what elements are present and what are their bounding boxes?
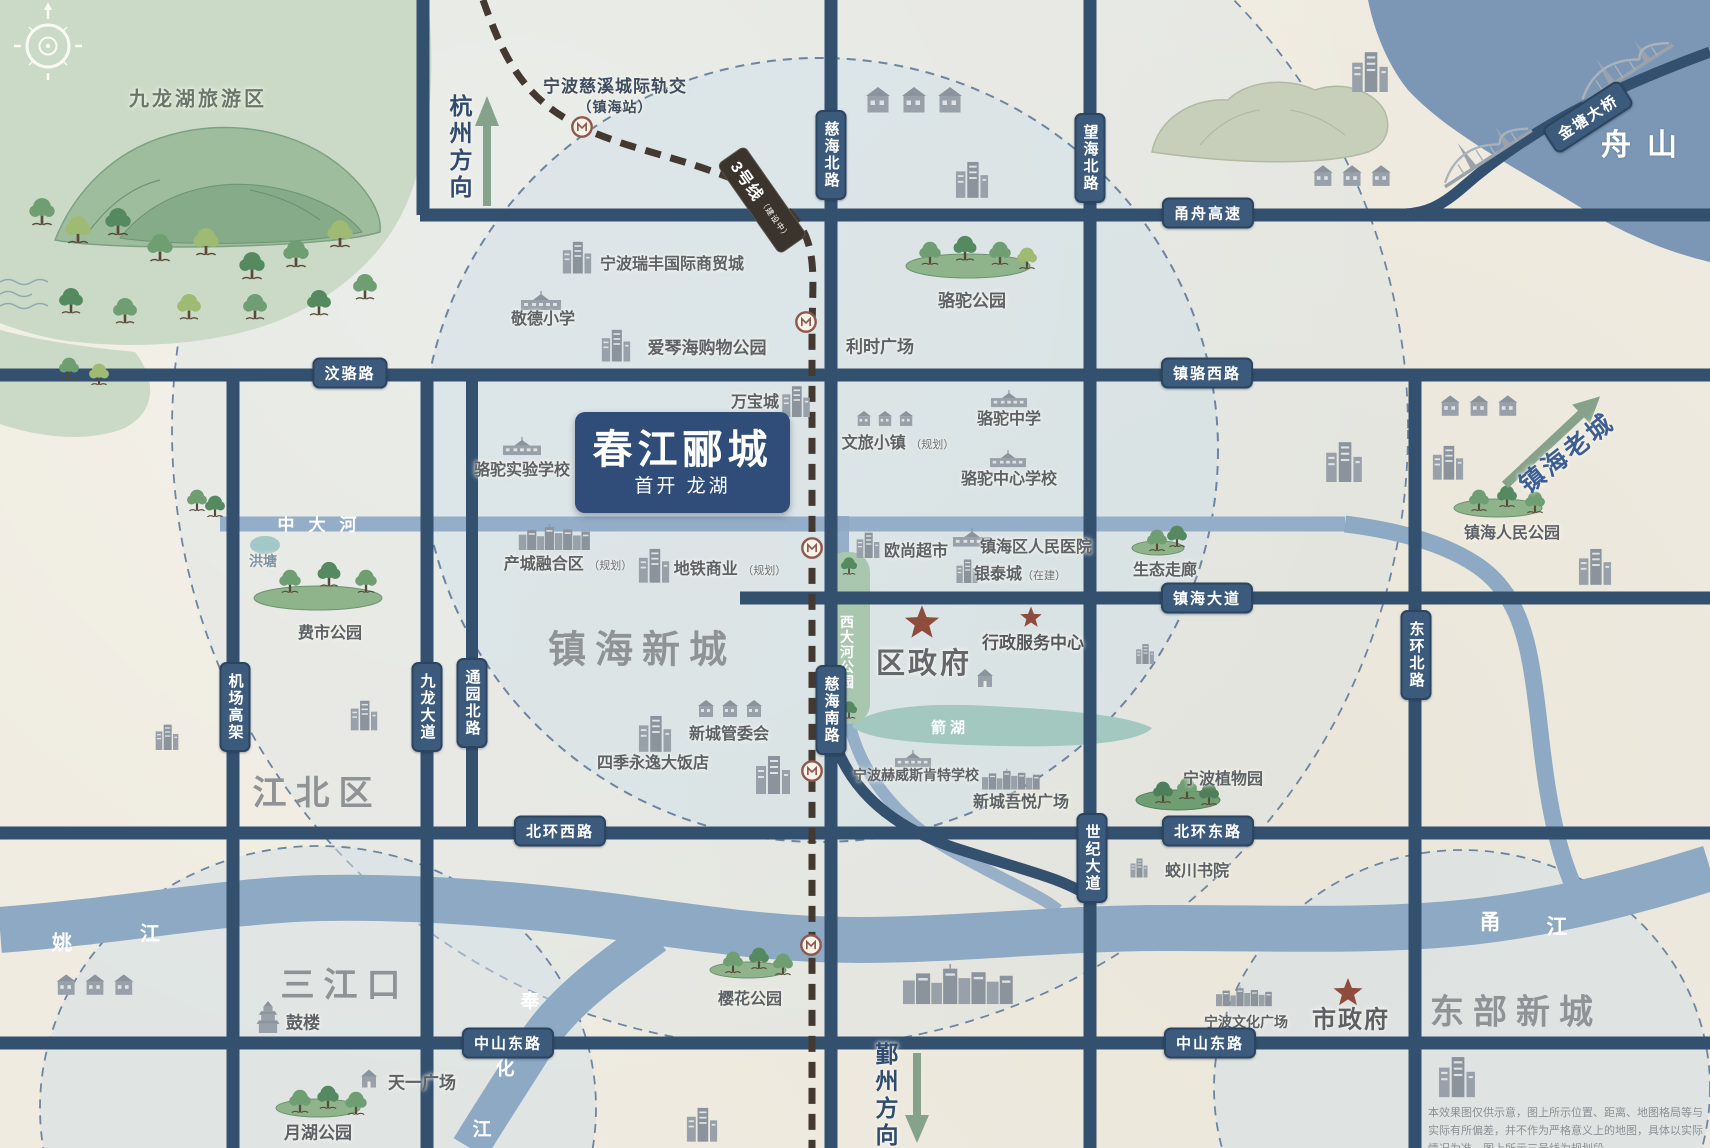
project-name: 春江郦城 [593, 430, 773, 470]
road-label-wenluo: 汶骆路 [312, 358, 387, 389]
poi-yintai-city: 银泰城（在建） [974, 560, 1066, 584]
buildings-icon [698, 700, 762, 717]
poi-wuyue-plaza: 新城吾悦广场 [973, 788, 1069, 812]
direction-yinzhou: 鄞州方向 [868, 1042, 902, 1148]
road-label-cihai-north: 慈海北路 [816, 110, 847, 200]
poi-luotuo-park: 骆驼公园 [938, 287, 1006, 312]
district-jiulonghu: 九龙湖旅游区 [129, 83, 267, 112]
lake-label-jianhu: 箭湖 [931, 717, 969, 738]
poi-hewisi-school: 宁波赫威斯肯特学校 [853, 765, 979, 785]
poi-wanbaocheng: 万宝城 [731, 388, 779, 412]
poi-eco-corridor: 生态走廊 [1133, 556, 1197, 580]
buildings-icon [866, 87, 962, 113]
road-label-yongzhou-expwy: 甬舟高速 [1162, 198, 1254, 229]
river-label-yao-1: 姚 [52, 927, 72, 956]
map-graphics [0, 0, 1710, 1148]
location-map: 春江郦城 首开 龙湖 3号线 （建设中） 宁波慈溪城际轨交 （镇海站） 汶骆路 … [0, 0, 1710, 1148]
pond-label-hongtang: 洪塘 [249, 551, 277, 571]
poi-yuehu-park: 月湖公园 [284, 1119, 352, 1144]
metro-station-icon [802, 761, 821, 780]
metro-station-icon [802, 538, 821, 557]
poi-gulou: 鼓楼 [286, 1009, 320, 1034]
poi-zhenhai-renmin-park: 镇海人民公园 [1464, 519, 1560, 543]
poi-auchan: 欧尚超市 [884, 537, 948, 561]
poi-ruifeng: 宁波瑞丰国际商贸城 [600, 250, 744, 274]
river-label-yong-1: 甬 [1480, 906, 1501, 936]
road-label-zhongshan-east-1: 中山东路 [462, 1028, 554, 1059]
poi-sijiyongyi-hotel: 四季永逸大饭店 [597, 749, 709, 773]
poi-luotuo-exp-school: 骆驼实验学校 [474, 456, 570, 480]
metro-station-icon [801, 935, 820, 954]
label-admin-center: 行政服务中心 [982, 629, 1084, 654]
river-label-zhongda: 中大河 [278, 511, 371, 536]
poi-yinghua-park: 樱花公园 [718, 985, 782, 1009]
poi-botanical-garden: 宁波植物园 [1183, 765, 1263, 789]
buildings-icon [57, 974, 134, 994]
project-logo: 春江郦城 首开 龙湖 [575, 412, 790, 513]
buildings-icon [857, 411, 913, 426]
poi-jiaochuan-academy: 蛟川书院 [1165, 857, 1229, 881]
buildings-icon [1352, 52, 1388, 92]
road-label-shiji-avenue: 世纪大道 [1077, 813, 1108, 903]
poi-luotuo-middle-school: 骆驼中学 [977, 405, 1041, 429]
poi-wenlv-town: 文旅小镇 （规划） [842, 429, 954, 453]
poi-guanweihui: 新城管委会 [689, 720, 769, 744]
label-district-gov: 区政府 [876, 640, 972, 682]
district-zhenhai-new-town: 镇海新城 [548, 619, 736, 674]
road-label-jiulong-avenue: 九龙大道 [412, 662, 443, 752]
poi-feishi-park: 费市公园 [298, 619, 362, 643]
poi-chancheng-area: 产城融合区 （规划） [504, 550, 632, 574]
intercity-rail-note: 宁波慈溪城际轨交 （镇海站） [543, 76, 687, 116]
poi-tianyi-plaza: 天一广场 [388, 1069, 456, 1094]
district-zhoushan: 舟山 [1601, 120, 1693, 164]
poi-metro-commerce: 地铁商业 （规划） [674, 555, 786, 579]
metro-station-icon [572, 117, 591, 136]
poi-jingde-school: 敬德小学 [511, 305, 575, 329]
road-label-beihuan-east: 北环东路 [1162, 816, 1254, 847]
road-label-wanghai-north: 望海北路 [1075, 113, 1106, 203]
road-label-zhenluo-west: 镇骆西路 [1161, 358, 1253, 389]
river-label-fenghua-3: 江 [472, 1115, 491, 1142]
river-label-yong-2: 江 [1547, 911, 1568, 941]
poi-luotuo-central-school: 骆驼中心学校 [961, 465, 1057, 489]
buildings-icon [687, 1108, 717, 1142]
district-sanjiangkou: 三江口 [281, 958, 410, 1007]
road-label-cihai-south: 慈海南路 [816, 665, 847, 755]
road-label-zhongshan-east-2: 中山东路 [1164, 1028, 1256, 1059]
buildings-icon [1313, 165, 1391, 186]
district-jiangbei: 江北区 [253, 766, 382, 815]
yinzhou-arrow-icon [905, 1053, 929, 1143]
river-label-yao-2: 江 [140, 918, 160, 947]
buildings-icon [1441, 395, 1518, 415]
poi-renmin-hospital: 镇海区人民医院 [980, 533, 1092, 557]
direction-hangzhou: 杭州方向 [442, 94, 476, 202]
map-disclaimer: 本效果图仅供示意，图上所示位置、距离、地图格局等与实际有所偏差，并不作为严格意义… [1428, 1104, 1706, 1148]
buildings-icon [1579, 549, 1611, 585]
road-label-zhenhai-avenue: 镇海大道 [1161, 583, 1253, 614]
project-subtitle: 首开 龙湖 [634, 477, 730, 496]
poi-aiqinhai: 爱琴海购物公园 [648, 334, 767, 359]
district-eastern-new-town: 东部新城 [1430, 985, 1602, 1034]
road-label-beihuan-west: 北环西路 [514, 816, 606, 847]
road-label-donghuan-north: 东环北路 [1401, 610, 1432, 700]
poi-lishi-plaza: 利时广场 [846, 333, 914, 358]
metro-station-icon [796, 312, 815, 331]
buildings-icon [1433, 446, 1463, 480]
road-label-jichang-viaduct: 机场高架 [220, 662, 251, 752]
road-label-tongyuan-north: 通园北路 [457, 658, 488, 748]
river-label-fenghua-1: 奉 [520, 987, 539, 1014]
label-city-gov: 市政府 [1312, 1000, 1390, 1035]
buildings-icon [156, 725, 179, 750]
